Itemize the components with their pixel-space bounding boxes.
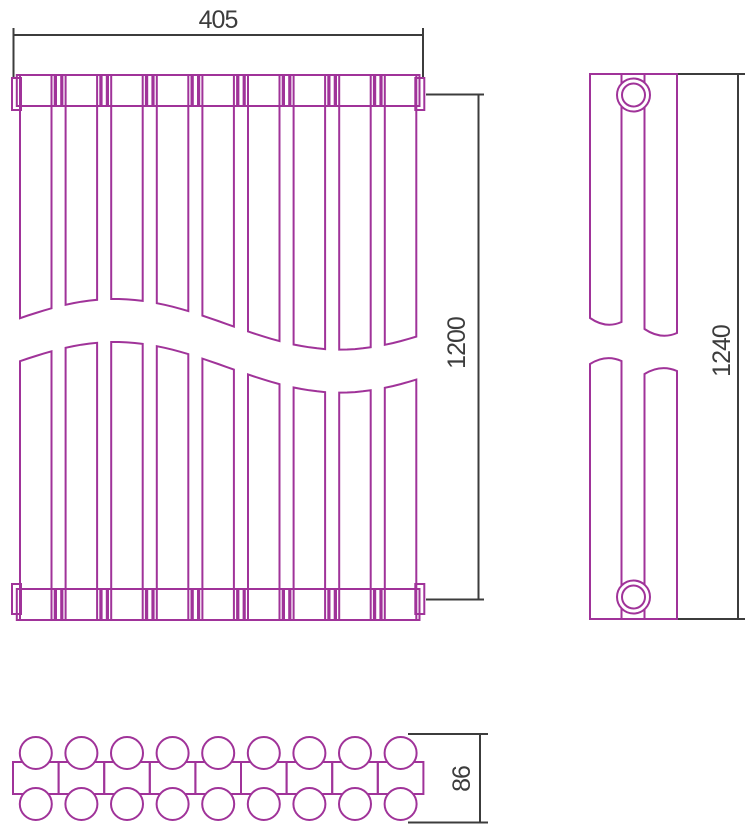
section-collar-bottom [154, 589, 192, 620]
section-nipple-top [284, 75, 289, 106]
radiator-panel-lower [294, 388, 326, 621]
tube-circle [385, 737, 417, 769]
side-slat-upper [645, 74, 678, 336]
tube-circle [20, 737, 52, 769]
tube-circle [65, 788, 97, 820]
radiator-panel-upper [248, 75, 280, 341]
drawing-canvas: 405 1200 1240 86 [0, 0, 750, 837]
section-nipple-top [375, 75, 380, 106]
radiator-panel-lower [111, 342, 143, 620]
dimension-annotations: 405 1200 1240 86 [14, 6, 746, 823]
radiator-panel-lower [157, 346, 189, 620]
section-nipple-top [102, 75, 107, 106]
radiator-panel-upper [157, 75, 189, 311]
tube-circle [385, 788, 417, 820]
section-nipple-bottom [193, 589, 198, 620]
radiator-technical-drawing: 405 1200 1240 86 [0, 0, 750, 837]
radiator-panel-upper [66, 75, 98, 305]
section-nipple-top [56, 75, 61, 106]
tube-circle [202, 788, 234, 820]
tube-circle [248, 737, 280, 769]
section-nipple-top [147, 75, 152, 106]
radiator-panel-upper [111, 75, 143, 301]
section-nipple-top [238, 75, 243, 106]
radiator-panel-lower [248, 374, 280, 620]
section-collar-top [199, 75, 237, 106]
section-collar-bottom [245, 589, 283, 620]
front-view-drawing [12, 75, 424, 620]
tube-circle [339, 788, 371, 820]
tube-circle [157, 788, 189, 820]
tube-circle [293, 737, 325, 769]
section-collar-bottom [290, 589, 328, 620]
tube-circle [20, 788, 52, 820]
radiator-panel-lower [339, 390, 371, 620]
section-collar-top [245, 75, 283, 106]
tube-circle [157, 737, 189, 769]
radiator-panel-upper [202, 75, 234, 327]
radiator-panel-lower [202, 359, 234, 620]
section-nipple-bottom [238, 589, 243, 620]
section-collar-top [382, 75, 420, 106]
radiator-panel-upper [20, 75, 52, 318]
section-nipple-bottom [284, 589, 289, 620]
section-collar-bottom [336, 589, 374, 620]
section-nipple-bottom [330, 589, 335, 620]
depth-dimension-label: 86 [448, 766, 476, 792]
section-collar-bottom [382, 589, 420, 620]
section-nipple-bottom [375, 589, 380, 620]
section-collar-top [336, 75, 374, 106]
section-collar-top [108, 75, 146, 106]
section-collar-top [154, 75, 192, 106]
section-collar-bottom [108, 589, 146, 620]
radiator-panel-lower [385, 380, 417, 620]
section-nipple-top [330, 75, 335, 106]
side-slat-lower [645, 368, 678, 619]
section-nipple-bottom [147, 589, 152, 620]
section-collar-top [62, 75, 100, 106]
section-collar-bottom [199, 589, 237, 620]
tube-circle [248, 788, 280, 820]
radiator-panel-lower [20, 351, 52, 620]
radiator-panel-upper [385, 75, 417, 345]
tube-circle [111, 788, 143, 820]
top-view-drawing [13, 737, 423, 820]
section-nipple-bottom [102, 589, 107, 620]
tube-circle [111, 737, 143, 769]
section-collar-top [290, 75, 328, 106]
section-nipple-top [193, 75, 198, 106]
tube-circle [293, 788, 325, 820]
height-dimension-label: 1200 [443, 317, 471, 369]
tube-circle [65, 737, 97, 769]
tube-circle [339, 737, 371, 769]
side-view-drawing [590, 74, 677, 619]
side-slat-upper [590, 74, 622, 325]
side-slat-lower [590, 358, 622, 619]
radiator-panel-lower [66, 343, 98, 620]
tube-circle [202, 737, 234, 769]
section-collar-bottom [62, 589, 100, 620]
width-dimension-label: 405 [199, 6, 238, 34]
overall-height-dimension-label: 1240 [708, 325, 736, 377]
radiator-panel-upper [294, 75, 326, 349]
section-collar-bottom [17, 589, 55, 620]
section-collar-top [17, 75, 55, 106]
radiator-panel-upper [339, 75, 371, 350]
section-nipple-bottom [56, 589, 61, 620]
